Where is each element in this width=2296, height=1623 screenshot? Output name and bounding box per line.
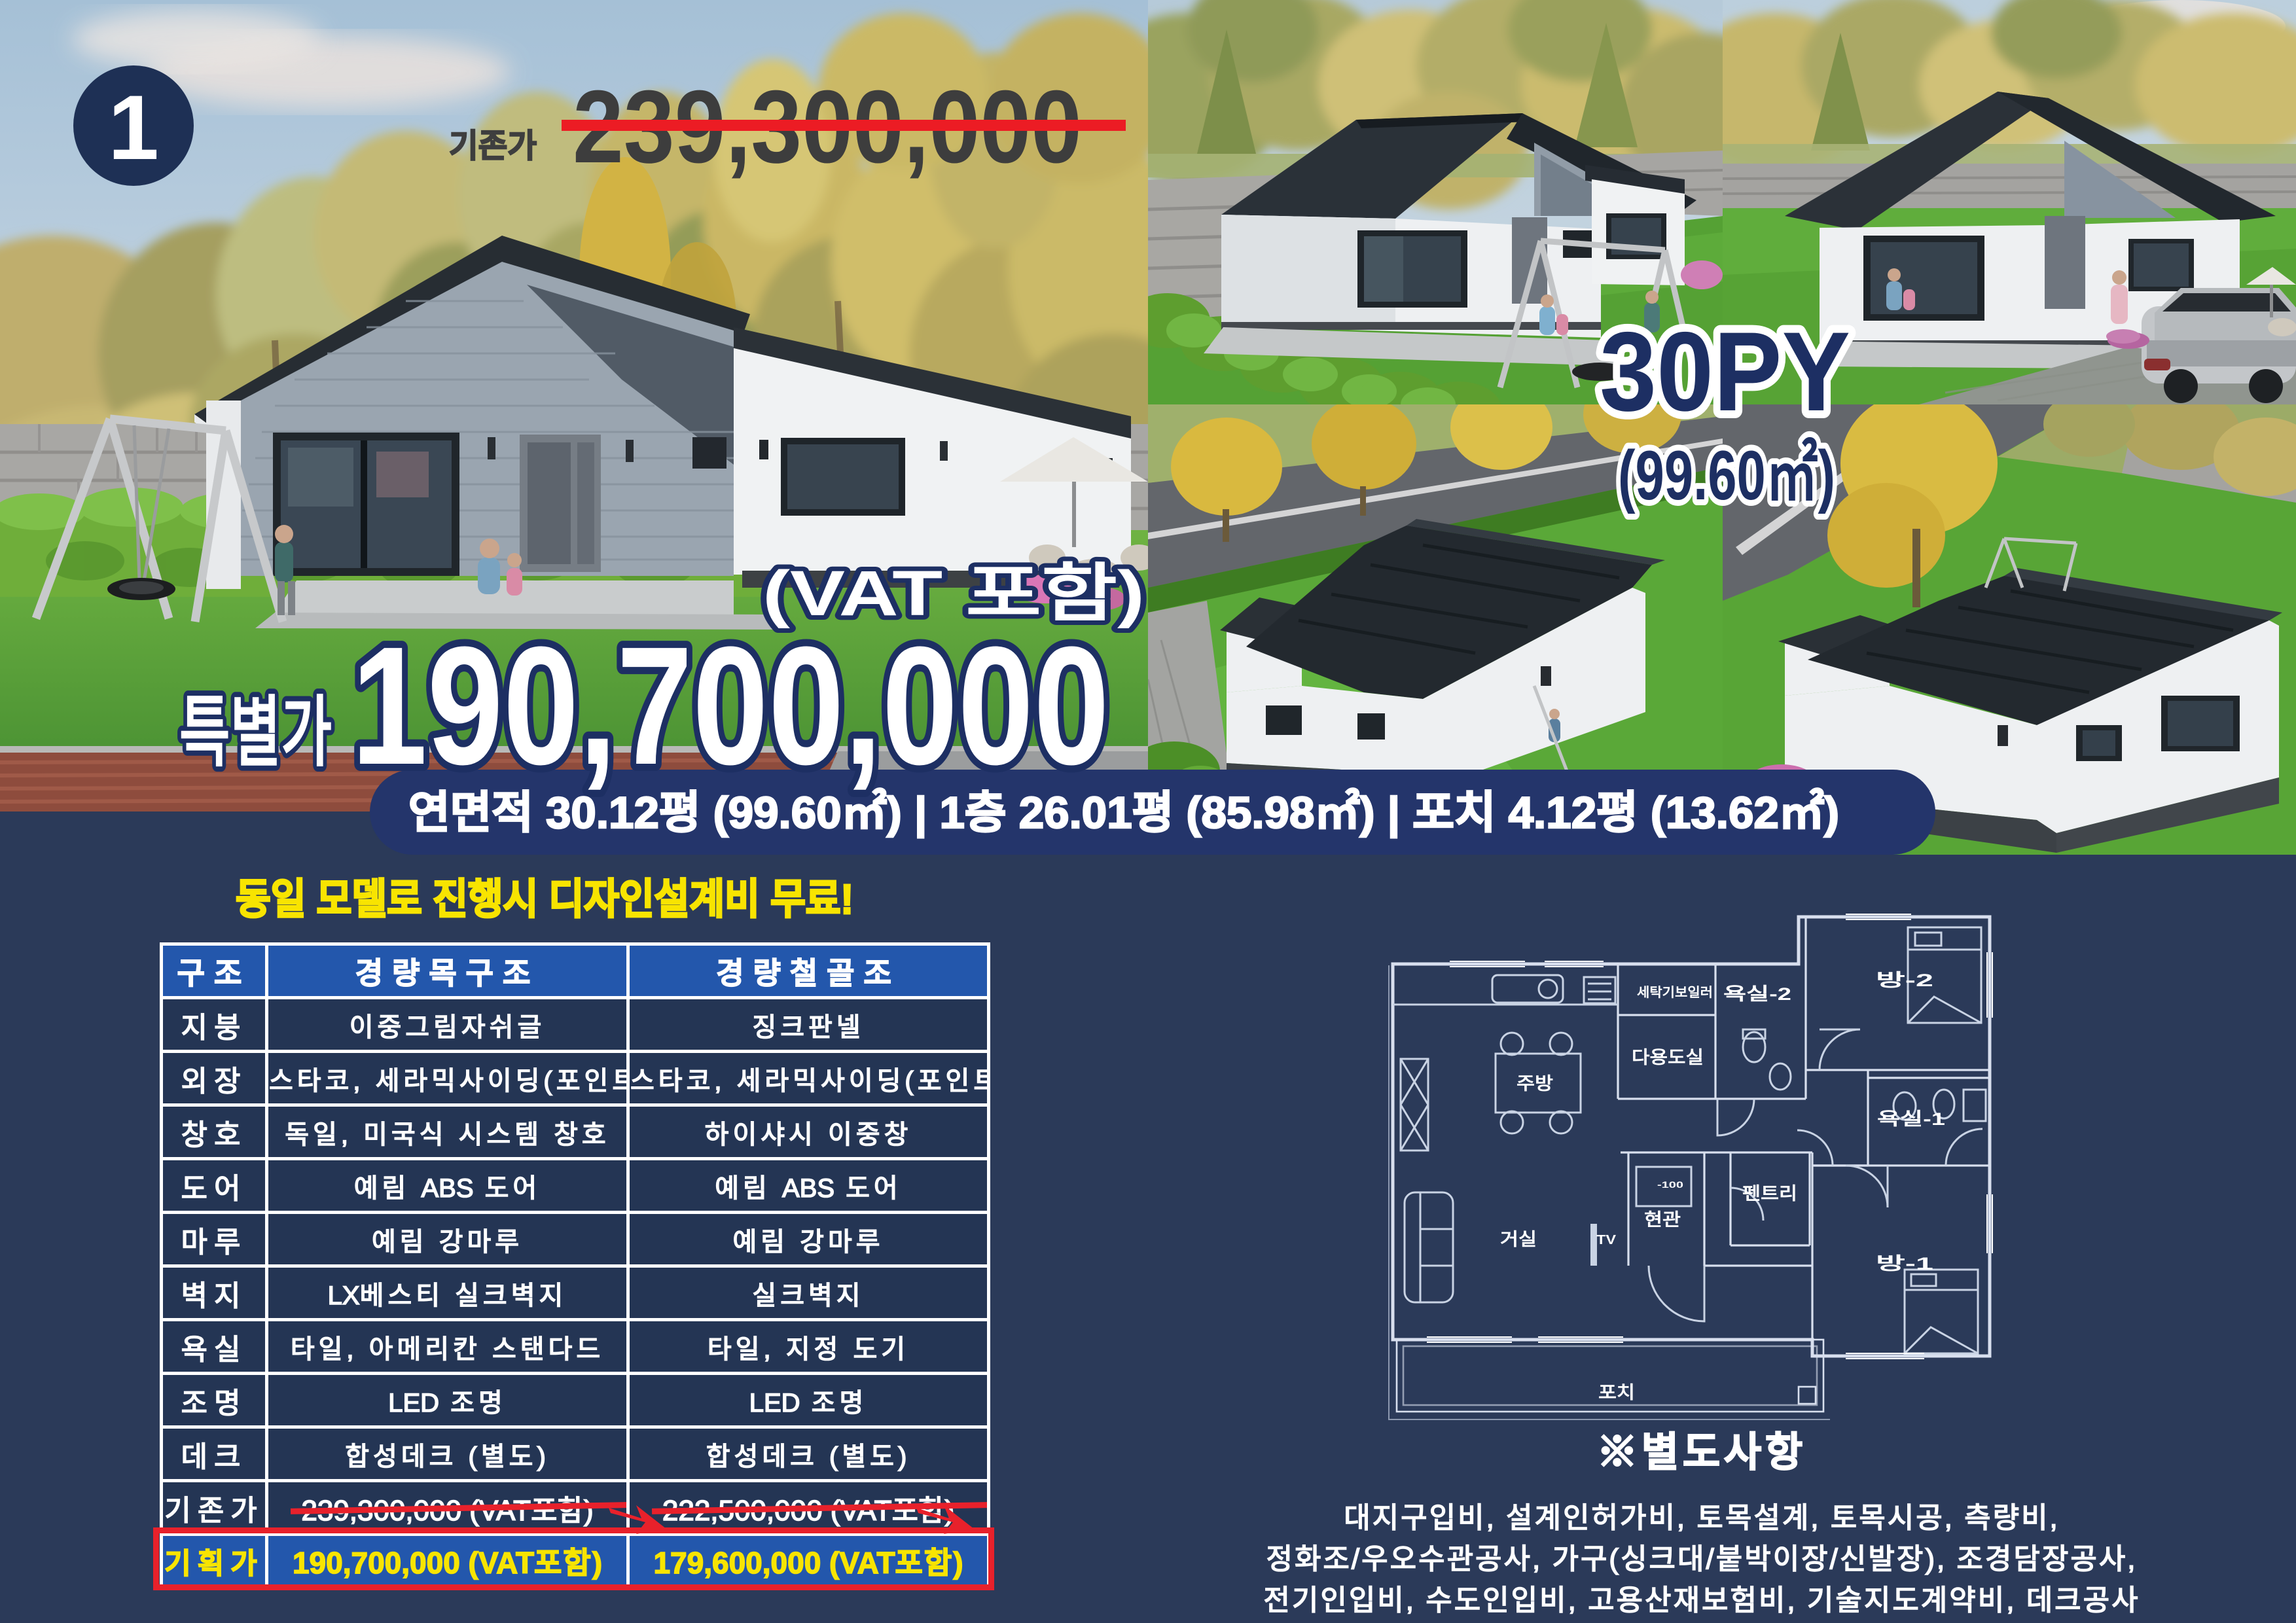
svg-text:(99.60㎡): (99.60㎡) <box>1618 436 1835 514</box>
svg-text:거실: 거실 <box>1500 1230 1537 1249</box>
svg-text:TV: TV <box>1596 1233 1617 1247</box>
svg-text:보일러: 보일러 <box>1675 985 1713 1000</box>
svg-text:방-1: 방-1 <box>1876 1254 1933 1274</box>
svg-text:동일 모델로 진행시 디자인설계비 무료!: 동일 모델로 진행시 디자인설계비 무료! <box>236 876 853 923</box>
svg-text:기존가: 기존가 <box>449 128 537 164</box>
svg-text:1: 1 <box>108 76 159 179</box>
svg-text:190,700,000: 190,700,000 <box>351 612 1109 800</box>
svg-text:주방: 주방 <box>1516 1074 1553 1094</box>
svg-text:욕실-1: 욕실-1 <box>1877 1109 1945 1129</box>
svg-text:30PY: 30PY <box>1600 309 1850 435</box>
svg-text:현관: 현관 <box>1644 1210 1681 1230</box>
svg-text:연면적 30.12평 (99.60㎡) | 1층 26.01: 연면적 30.12평 (99.60㎡) | 1층 26.01평 (85.98㎡)… <box>408 788 1839 838</box>
svg-text:욕실-2: 욕실-2 <box>1723 984 1791 1004</box>
svg-text:다용도실: 다용도실 <box>1632 1048 1704 1067</box>
svg-text:특별가: 특별가 <box>179 690 332 776</box>
svg-text:-100: -100 <box>1657 1179 1683 1190</box>
svg-text:방-2: 방-2 <box>1876 971 1933 990</box>
svg-text:포치: 포치 <box>1598 1383 1635 1402</box>
svg-text:펜트리: 펜트리 <box>1742 1184 1797 1204</box>
svg-text:세탁기: 세탁기 <box>1637 985 1675 1000</box>
